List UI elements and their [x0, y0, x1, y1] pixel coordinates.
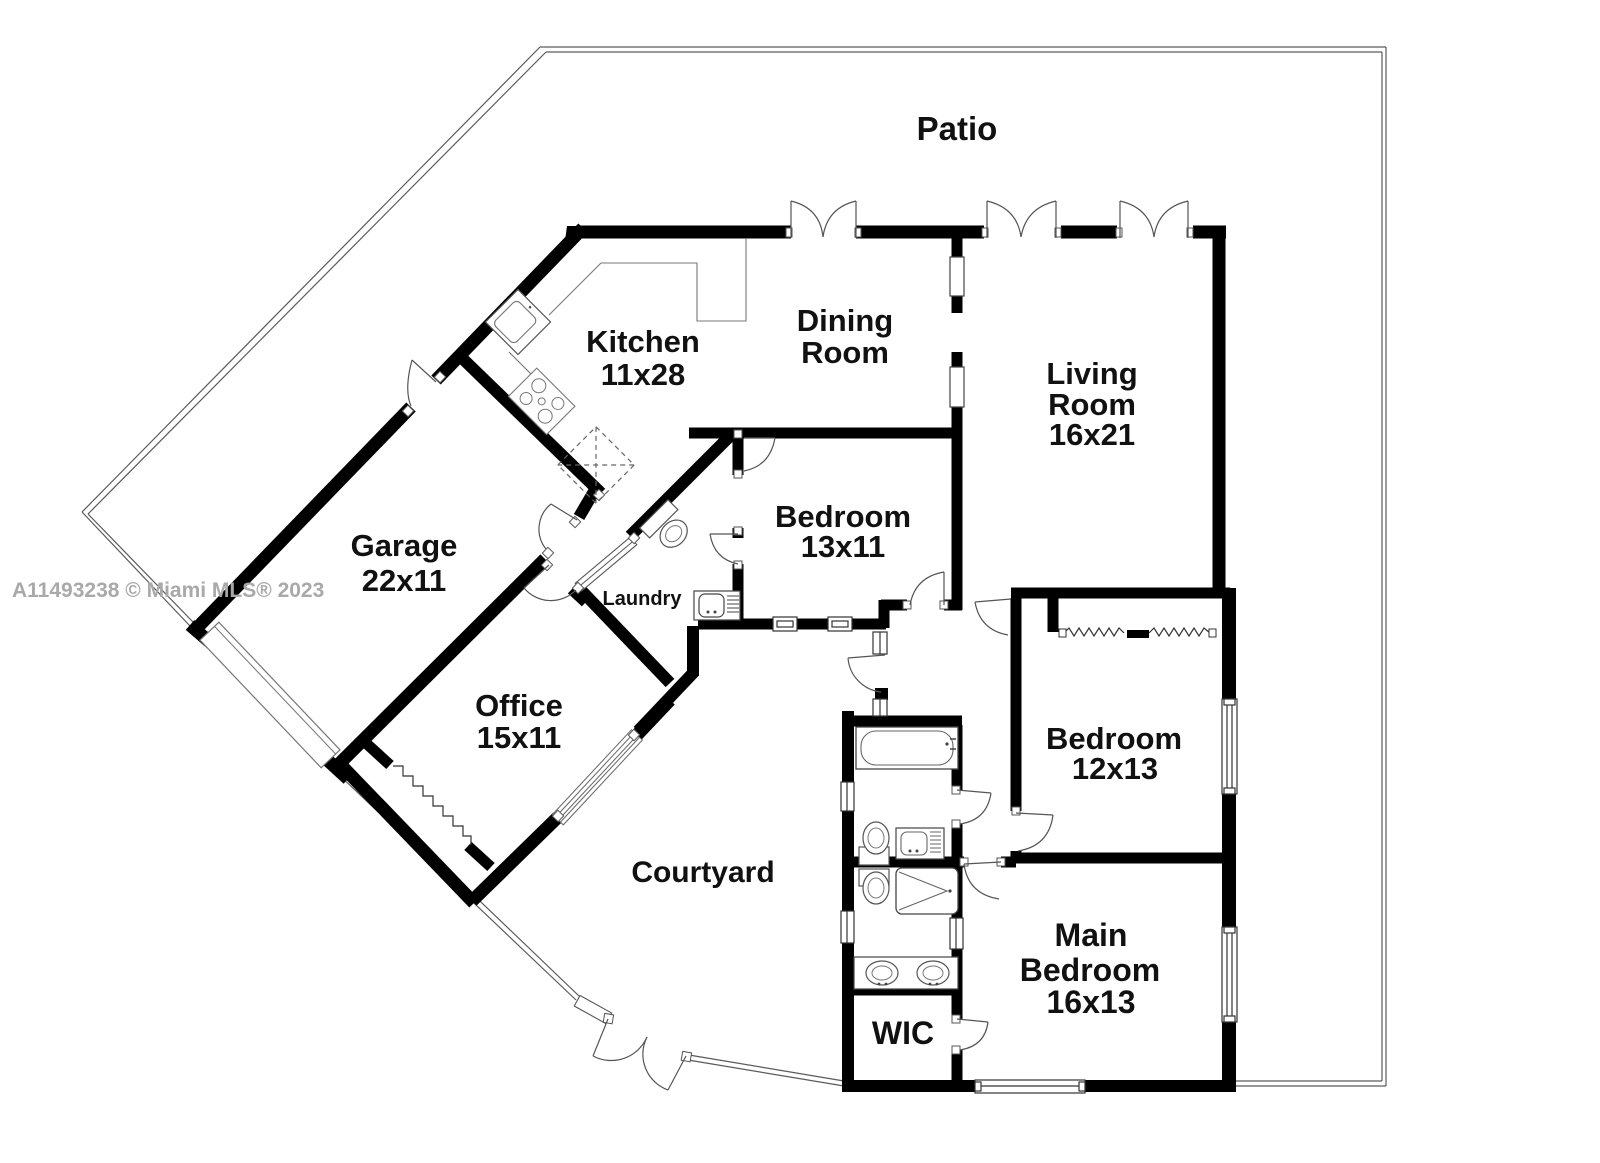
svg-text:Bedroom: Bedroom — [1020, 952, 1160, 988]
svg-text:Laundry: Laundry — [603, 588, 683, 610]
svg-text:Courtyard: Courtyard — [631, 856, 774, 889]
svg-text:Office: Office — [475, 688, 563, 723]
svg-text:15x11: 15x11 — [477, 720, 562, 755]
svg-text:13x11: 13x11 — [801, 529, 886, 564]
svg-text:22x11: 22x11 — [362, 563, 447, 598]
svg-text:Room: Room — [801, 335, 889, 370]
svg-text:Living: Living — [1046, 356, 1137, 391]
svg-text:11x28: 11x28 — [601, 357, 686, 392]
svg-text:Patio: Patio — [917, 110, 998, 147]
svg-text:12x13: 12x13 — [1072, 751, 1158, 786]
svg-text:Dining: Dining — [797, 303, 893, 338]
svg-text:16x21: 16x21 — [1049, 417, 1135, 452]
svg-text:Main: Main — [1055, 917, 1128, 953]
svg-text:16x13: 16x13 — [1047, 984, 1136, 1020]
svg-text:Garage: Garage — [351, 528, 458, 563]
svg-text:WIC: WIC — [872, 1015, 934, 1051]
svg-text:A11493238 © Miami MLS® 2023: A11493238 © Miami MLS® 2023 — [12, 579, 324, 602]
svg-text:Kitchen: Kitchen — [586, 324, 700, 359]
